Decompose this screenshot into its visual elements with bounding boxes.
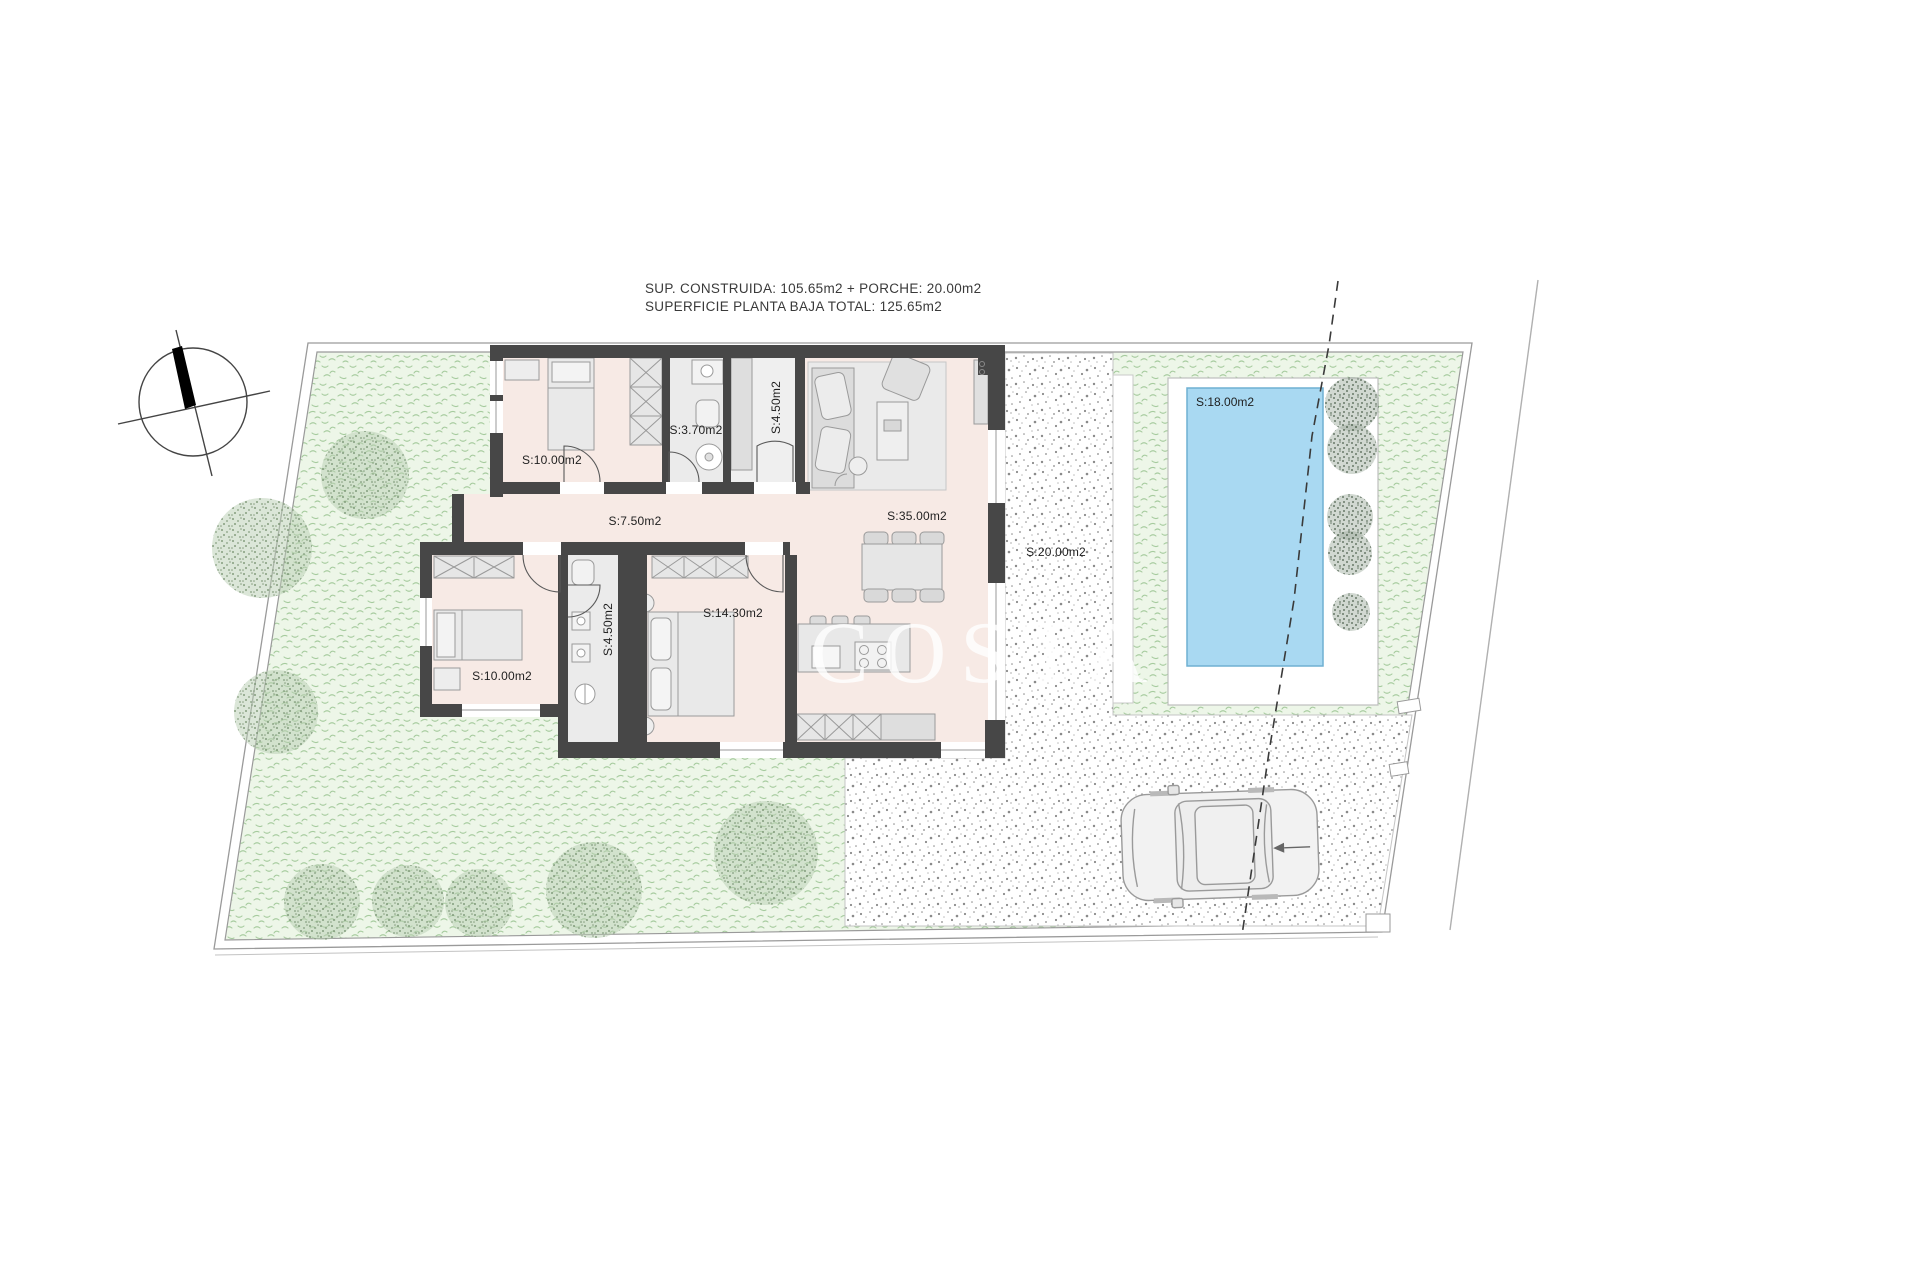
- bush: [284, 864, 360, 940]
- title-line-2: SUPERFICIE PLANTA BAJA TOTAL: 125.65m2: [645, 299, 942, 314]
- porch-area-label: S:20.00m2: [1026, 545, 1086, 559]
- adjacent-boundary-line: [1450, 280, 1538, 930]
- pool-area: S:18.00m2: [1168, 377, 1379, 705]
- tree: [321, 431, 409, 519]
- label-bedroom-top: S:10.00m2: [522, 453, 582, 467]
- label-hallway: S:7.50m2: [609, 514, 662, 528]
- label-master-bedroom: S:14.30m2: [703, 606, 763, 620]
- pool-area-label: S:18.00m2: [1196, 395, 1254, 409]
- tv-unit: [877, 402, 908, 460]
- corner-pillar: [1366, 914, 1390, 932]
- side-table: [849, 457, 867, 475]
- nightstand: [505, 360, 539, 380]
- watermark: COSTA S: [810, 605, 1161, 702]
- gate-marker: [1389, 762, 1409, 777]
- wardrobe-top: [630, 358, 662, 445]
- label-laundry: S:4.50m2: [769, 381, 783, 434]
- bathroom-top-fixtures: [692, 360, 723, 470]
- bed-single-top: [548, 358, 594, 450]
- tree: [234, 670, 318, 754]
- label-bedroom-left: S:10.00m2: [472, 669, 532, 683]
- swimming-pool: [1187, 388, 1323, 666]
- tree: [546, 842, 642, 938]
- site-plan-drawing: SUP. CONSTRUIDA: 105.65m2 + PORCHE: 20.0…: [0, 0, 1920, 1280]
- sofa: [812, 368, 854, 488]
- title-block: SUP. CONSTRUIDA: 105.65m2 + PORCHE: 20.0…: [645, 281, 981, 314]
- site-plan-page: SUP. CONSTRUIDA: 105.65m2 + PORCHE: 20.0…: [0, 0, 1920, 1280]
- nightstand: [434, 668, 460, 690]
- dining-set: [862, 532, 944, 602]
- watermark-tail: S: [1030, 605, 1093, 702]
- compass-north-arrow: [118, 330, 270, 476]
- label-living: S:35.00m2: [887, 509, 947, 523]
- bush: [445, 869, 513, 937]
- tree: [714, 801, 818, 905]
- bed-single-left: [434, 610, 522, 660]
- bush: [372, 865, 444, 937]
- wardrobe-left: [434, 556, 514, 578]
- tree: [212, 498, 312, 598]
- title-line-1: SUP. CONSTRUIDA: 105.65m2 + PORCHE: 20.0…: [645, 281, 981, 296]
- label-bathroom-top: S:3.70m2: [670, 423, 723, 437]
- north-needle: [172, 346, 196, 409]
- laundry-cabinet: [731, 358, 752, 470]
- label-bathroom-left: S:4.50m2: [601, 603, 615, 656]
- wardrobe-master: [652, 556, 748, 578]
- kitchen-cabinet-row: [797, 714, 935, 740]
- watermark-text: COSTA: [810, 605, 1161, 702]
- car: [1120, 781, 1320, 910]
